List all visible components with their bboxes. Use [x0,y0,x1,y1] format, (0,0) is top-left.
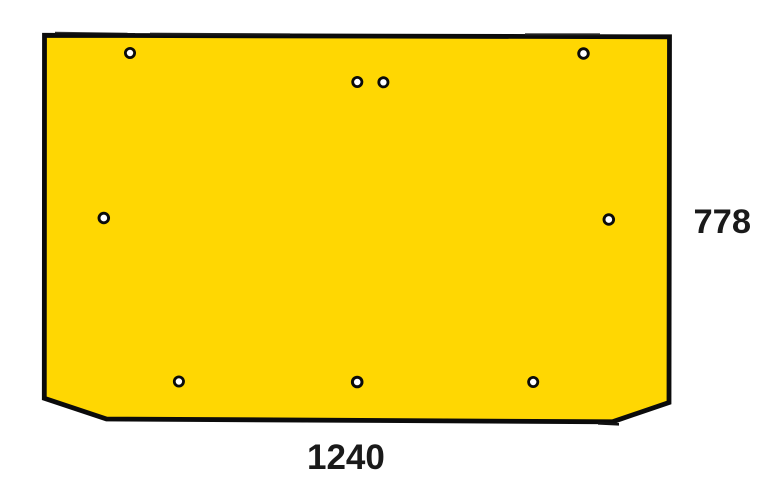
svg-text:1240: 1240 [307,438,385,477]
svg-text:778: 778 [694,203,752,241]
